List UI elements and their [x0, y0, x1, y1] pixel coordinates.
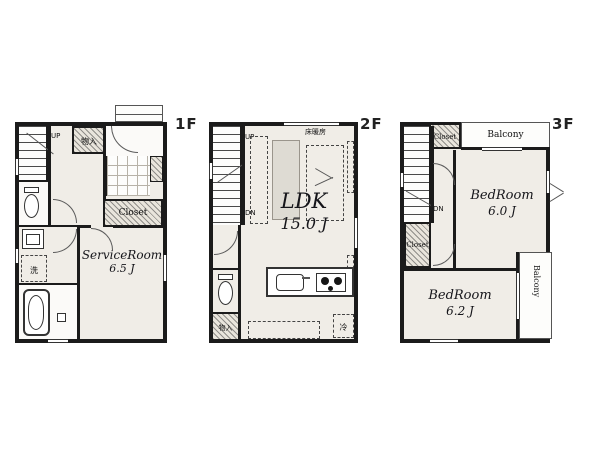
ldk-size: 15.0 J — [259, 214, 349, 233]
ldk-name: LDK — [259, 189, 349, 214]
toilet-tank-icon — [218, 274, 233, 280]
storage-label-2f: 物入 — [213, 323, 238, 333]
refrigerator-box: 冷 — [333, 314, 354, 338]
floor-plan-2f: UP DN 床暖房 LDK 15.0 J 物入 冷 2F — [209, 103, 409, 348]
closet-mid-3f: Closet — [404, 222, 431, 268]
stairs-up-label: UP — [51, 132, 60, 140]
interior-wall — [213, 268, 240, 270]
entry-side-cabinet — [150, 156, 163, 182]
staircase-3f — [404, 126, 431, 223]
washing-machine-box: 洗 — [21, 255, 47, 282]
burner-icon — [321, 277, 329, 285]
shower-fixture-icon — [57, 313, 66, 322]
stove-icon — [316, 273, 346, 292]
kitchen-counter — [266, 267, 354, 297]
interior-wall — [103, 126, 106, 199]
bedroom1-name: BedRoom — [458, 188, 546, 204]
floor-plan-3f: Balcony Closet DN BedRoom 6.0 J Closet B… — [400, 103, 600, 348]
entry-tile-floor — [105, 156, 150, 196]
interior-wall — [77, 225, 91, 228]
bathtub-basin-icon — [28, 295, 44, 330]
interior-wall — [19, 225, 79, 227]
window — [516, 273, 520, 319]
window — [209, 163, 213, 179]
bedroom2-size: 6.2 J — [418, 304, 502, 318]
bedroom2-name: BedRoom — [418, 288, 502, 304]
floor-label-2f: 2F — [360, 115, 383, 133]
interior-wall — [242, 126, 245, 225]
porch-step-line — [116, 114, 162, 115]
balcony-top: Balcony — [461, 122, 550, 149]
bay-window-mark — [550, 193, 564, 202]
window — [430, 339, 458, 343]
sideboard-box — [248, 321, 320, 339]
stairs-down-label-3f: DN — [433, 205, 444, 213]
ldk-label: LDK 15.0 J — [259, 189, 349, 233]
shelf-strip — [347, 141, 354, 193]
washer-label: 洗 — [22, 265, 46, 276]
window — [48, 339, 68, 343]
floor-label-3f: 3F — [552, 115, 575, 133]
entry-porch — [115, 105, 163, 122]
storage-closet-2f: 物入 — [213, 312, 238, 339]
closet-mid-label: Closet — [406, 241, 429, 249]
window — [15, 159, 19, 175]
washbasin-icon — [22, 229, 44, 249]
interior-wall — [404, 268, 518, 271]
burner-icon — [328, 286, 333, 291]
serviceroom-name: ServiceRoom — [81, 248, 163, 262]
interior-wall — [238, 225, 241, 339]
closet-1f: Closet — [103, 199, 163, 227]
faucet-icon — [302, 277, 310, 279]
burner-icon — [334, 277, 342, 285]
refrigerator-label: 冷 — [334, 322, 353, 333]
window — [163, 255, 167, 281]
staircase-1f — [19, 126, 48, 183]
closet-label-1f: Closet — [105, 208, 161, 218]
bedroom2-label: BedRoom 6.2 J — [418, 288, 502, 318]
window — [354, 218, 358, 248]
toilet-tank-icon — [24, 187, 39, 193]
storage-closet-1f: 物入 — [72, 126, 105, 154]
bay-window-mark — [550, 183, 564, 192]
serviceroom-label: ServiceRoom 6.5 J — [81, 248, 163, 276]
toilet-icon — [24, 194, 39, 218]
balcony-side: Balcony — [519, 252, 552, 339]
balcony-top-label: Balcony — [462, 130, 549, 140]
floor-plan-1f: UP 物入 Closet 洗 ServiceRoom 6.5 J 1F — [15, 103, 215, 348]
toilet-icon — [218, 281, 233, 305]
window — [482, 147, 522, 151]
interior-wall — [113, 225, 163, 228]
interior-wall — [77, 225, 80, 339]
window — [15, 249, 19, 263]
bedroom1-label: BedRoom 6.0 J — [458, 188, 546, 218]
balcony-side-label: Balcony — [532, 265, 541, 297]
storage-label-1f: 物入 — [76, 136, 102, 147]
floor-label-1f: 1F — [175, 115, 198, 133]
serviceroom-size: 6.5 J — [81, 262, 163, 275]
washbasin-bowl-icon — [26, 234, 40, 245]
window — [400, 173, 404, 187]
interior-wall — [48, 126, 51, 225]
window — [284, 122, 339, 126]
kitchen-sink-icon — [276, 274, 304, 291]
floor-heating-label: 床暖房 — [305, 127, 349, 137]
closet-top-label: Closet — [431, 133, 459, 141]
bedroom1-size: 6.0 J — [458, 204, 546, 218]
bathtub-icon — [23, 289, 50, 336]
